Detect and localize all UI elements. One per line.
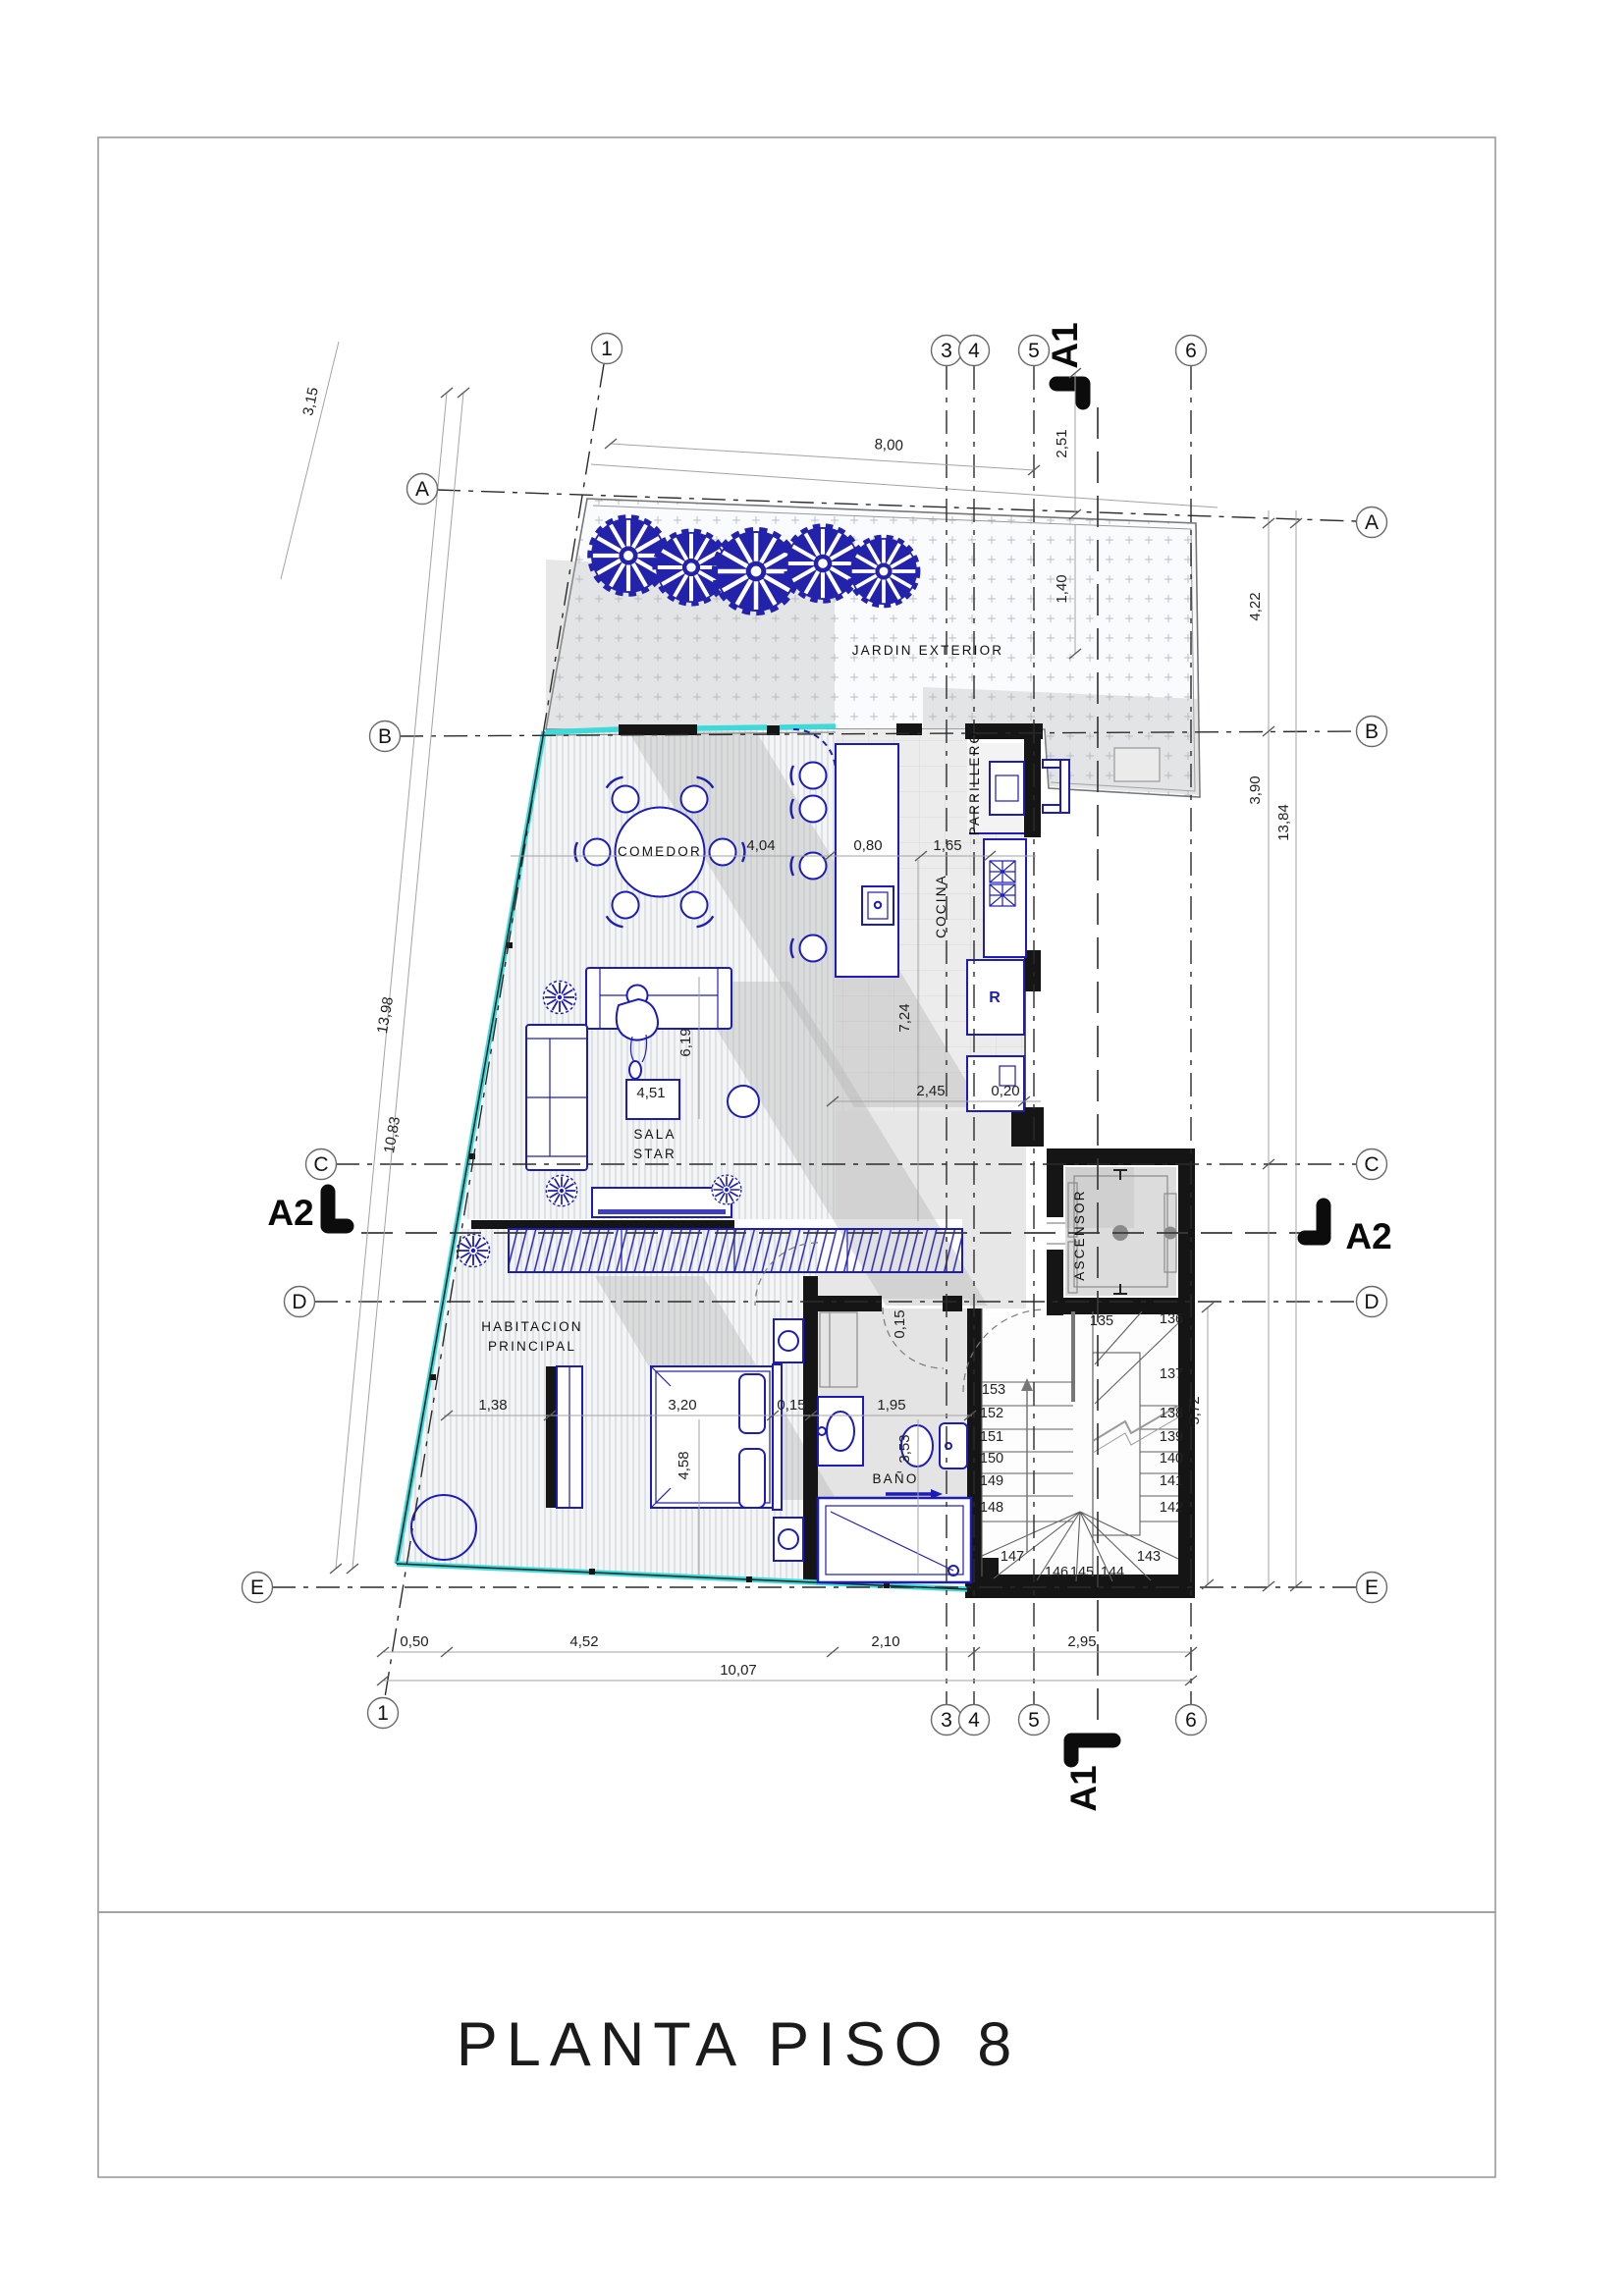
- grid-bubble: A: [407, 474, 438, 505]
- room-label: HABITACION: [481, 1319, 583, 1334]
- svg-text:A: A: [1365, 511, 1379, 534]
- grid-bubble: 6: [1176, 1705, 1207, 1735]
- grid-bubble: 3: [932, 1705, 962, 1735]
- stair-step-number: 152: [980, 1406, 1003, 1421]
- stair-step-number: 135: [1090, 1313, 1113, 1329]
- dimension-label: 0,20: [991, 1083, 1019, 1099]
- stair-step-number: 142: [1160, 1500, 1183, 1516]
- svg-text:5: 5: [1028, 1709, 1040, 1732]
- section-label: A2: [267, 1193, 313, 1233]
- svg-text:B: B: [1365, 721, 1379, 743]
- kitchen-island: [791, 744, 898, 977]
- dimension-label: 2,45: [916, 1083, 945, 1099]
- plant-icon: [458, 1235, 490, 1267]
- stair-step-number: 145: [1070, 1565, 1094, 1580]
- grid-bubble: 5: [1019, 1705, 1050, 1735]
- stair-step-number: 153: [982, 1382, 1005, 1398]
- svg-text:3: 3: [941, 340, 952, 362]
- bedroom-dresser: [546, 1366, 582, 1508]
- stair-step-number: 151: [980, 1429, 1003, 1445]
- svg-text:B: B: [378, 725, 392, 748]
- sofa-top: [586, 968, 731, 1029]
- dimension-label: 8,00: [874, 436, 903, 454]
- svg-text:E: E: [1365, 1576, 1379, 1599]
- dimension-label: 1,40: [1054, 574, 1070, 603]
- stair-step-number: 148: [980, 1500, 1003, 1516]
- room-label: PRINCIPAL: [488, 1339, 576, 1354]
- svg-text:5: 5: [1028, 340, 1040, 362]
- stair-step-number: 137: [1160, 1366, 1183, 1382]
- room-label: PARRILLERO: [967, 731, 982, 836]
- grid-bubble: B: [1357, 717, 1387, 747]
- grid-bubble: 1: [368, 1698, 399, 1729]
- dimension-label: 2,10: [871, 1633, 899, 1650]
- dimension-label: 5,72: [1186, 1396, 1203, 1424]
- dimension-label: 0,15: [892, 1309, 908, 1338]
- dimension-label: 4,22: [1247, 592, 1264, 620]
- grid-bubble: A: [1357, 507, 1387, 538]
- dimension-label: 10,07: [720, 1662, 757, 1679]
- dimension-label: 2,51: [1054, 429, 1070, 457]
- section-label: A2: [1345, 1216, 1391, 1256]
- grid-bubble: C: [306, 1149, 337, 1180]
- bed: [651, 1364, 782, 1510]
- stair-step-number: 144: [1101, 1565, 1124, 1580]
- svg-text:C: C: [313, 1153, 328, 1176]
- media-wall: [471, 1220, 734, 1229]
- dimension-label: 3,90: [1247, 775, 1264, 804]
- dimension-label: 1,65: [933, 837, 961, 854]
- svg-text:D: D: [292, 1291, 306, 1313]
- closet: [509, 1229, 962, 1272]
- elevator: [1047, 1167, 1177, 1296]
- plant-icon: [712, 1175, 741, 1204]
- grid-bubble: B: [370, 721, 401, 752]
- room-label: STAR: [633, 1147, 677, 1161]
- room-label: R: [989, 989, 1001, 1006]
- room-label: BAÑO: [872, 1471, 918, 1486]
- dimension-label: 4,04: [746, 837, 775, 854]
- drawing-sheet: 8,003,1513,9810,832,511,404,223,9013,845…: [0, 0, 1624, 2296]
- stair-step-number: 150: [980, 1451, 1003, 1467]
- stair-step-number: 147: [1001, 1549, 1024, 1565]
- svg-text:D: D: [1364, 1291, 1379, 1313]
- dimension-label: 0,50: [400, 1633, 428, 1650]
- svg-text:1: 1: [377, 1702, 389, 1725]
- stair-step-number: 139: [1160, 1429, 1183, 1445]
- grid-bubble: D: [285, 1287, 315, 1317]
- section-label: A1: [1045, 322, 1085, 368]
- dimension-label: 0,80: [853, 837, 882, 854]
- bath-bedroom-wall: [803, 1276, 818, 1580]
- sheet-title: PLANTA PISO 8: [457, 2010, 1021, 2079]
- dimension-label: 1,95: [877, 1397, 905, 1414]
- dimension-label: 0,15: [777, 1397, 805, 1414]
- floor-plan-svg: 8,003,1513,9810,832,511,404,223,9013,845…: [0, 0, 1624, 2296]
- room-label: COMEDOR: [618, 844, 702, 859]
- dimension-label: 3,20: [668, 1397, 696, 1414]
- section-label: A1: [1063, 1765, 1104, 1811]
- grid-bubble: 4: [959, 1705, 990, 1735]
- stair-step-number: 143: [1137, 1549, 1161, 1565]
- dimension-label: 3,53: [896, 1434, 913, 1463]
- dimension-label: 6,19: [677, 1028, 694, 1056]
- grid-bubble: D: [1357, 1287, 1387, 1317]
- stove-counter: [984, 839, 1026, 957]
- room-label: JARDIN EXTERIOR: [852, 643, 1004, 658]
- parrillero-right-wall: [1024, 739, 1041, 837]
- pouf: [728, 1086, 759, 1117]
- svg-text:6: 6: [1185, 340, 1197, 362]
- grid-bubble: 6: [1176, 336, 1207, 366]
- dimension-label: 4,51: [636, 1085, 665, 1101]
- stair-step-number: 146: [1045, 1565, 1068, 1580]
- stair-step-number: 149: [980, 1473, 1003, 1489]
- sofa-left: [526, 1025, 587, 1170]
- dimension-label: 4,52: [569, 1633, 598, 1650]
- tv-console: [592, 1188, 731, 1217]
- grid-bubble: E: [243, 1573, 273, 1603]
- grid-bubble: 1: [592, 334, 623, 364]
- stair-step-number: 141: [1160, 1473, 1183, 1489]
- terrace-table: [1114, 748, 1160, 781]
- dimension-label: 4,58: [676, 1451, 692, 1479]
- grid-bubble: C: [1357, 1149, 1387, 1180]
- svg-text:3: 3: [941, 1709, 952, 1732]
- plant-icon: [544, 982, 576, 1014]
- svg-text:4: 4: [968, 340, 980, 362]
- dimension-label: 13,84: [1275, 804, 1292, 841]
- stair-step-number: 136: [1160, 1311, 1183, 1327]
- room-label: COCINA: [934, 874, 948, 938]
- dimension-label: 1,38: [478, 1397, 507, 1414]
- svg-text:1: 1: [601, 338, 613, 360]
- stair-step-number: 138: [1160, 1406, 1183, 1421]
- grid-bubble: 3: [932, 336, 962, 366]
- dimension-label: 7,24: [896, 1003, 913, 1032]
- svg-text:C: C: [1364, 1153, 1379, 1176]
- grid-bubble: E: [1357, 1573, 1387, 1603]
- plant-icon: [546, 1175, 576, 1205]
- grid-bubble: 4: [959, 336, 990, 366]
- dimension-label: 2,95: [1067, 1633, 1096, 1650]
- grill: [990, 762, 1024, 815]
- svg-text:4: 4: [968, 1709, 980, 1732]
- room-label: SALA: [633, 1127, 676, 1142]
- stair-step-number: 140: [1160, 1451, 1183, 1467]
- svg-text:E: E: [250, 1576, 264, 1599]
- room-label: ASCENSOR: [1072, 1189, 1087, 1280]
- svg-text:A: A: [415, 478, 429, 501]
- svg-text:6: 6: [1185, 1709, 1197, 1732]
